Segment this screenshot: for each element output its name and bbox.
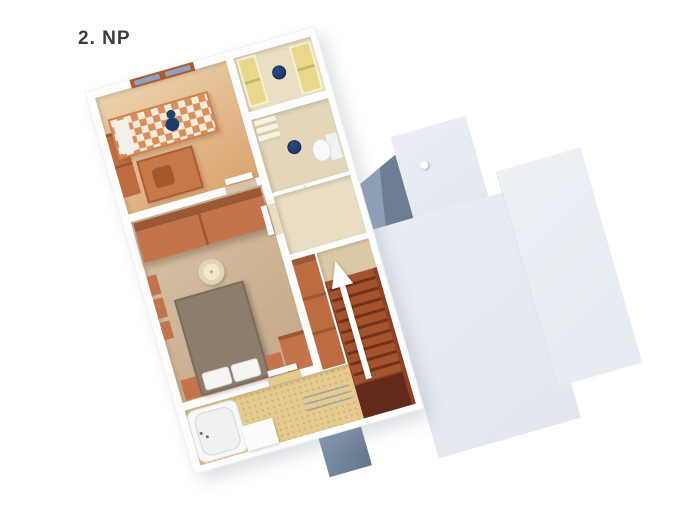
building-shell xyxy=(84,26,424,475)
floorplan-scene: 2. NP xyxy=(0,0,686,514)
floor-level-label: 2. NP xyxy=(78,28,131,50)
